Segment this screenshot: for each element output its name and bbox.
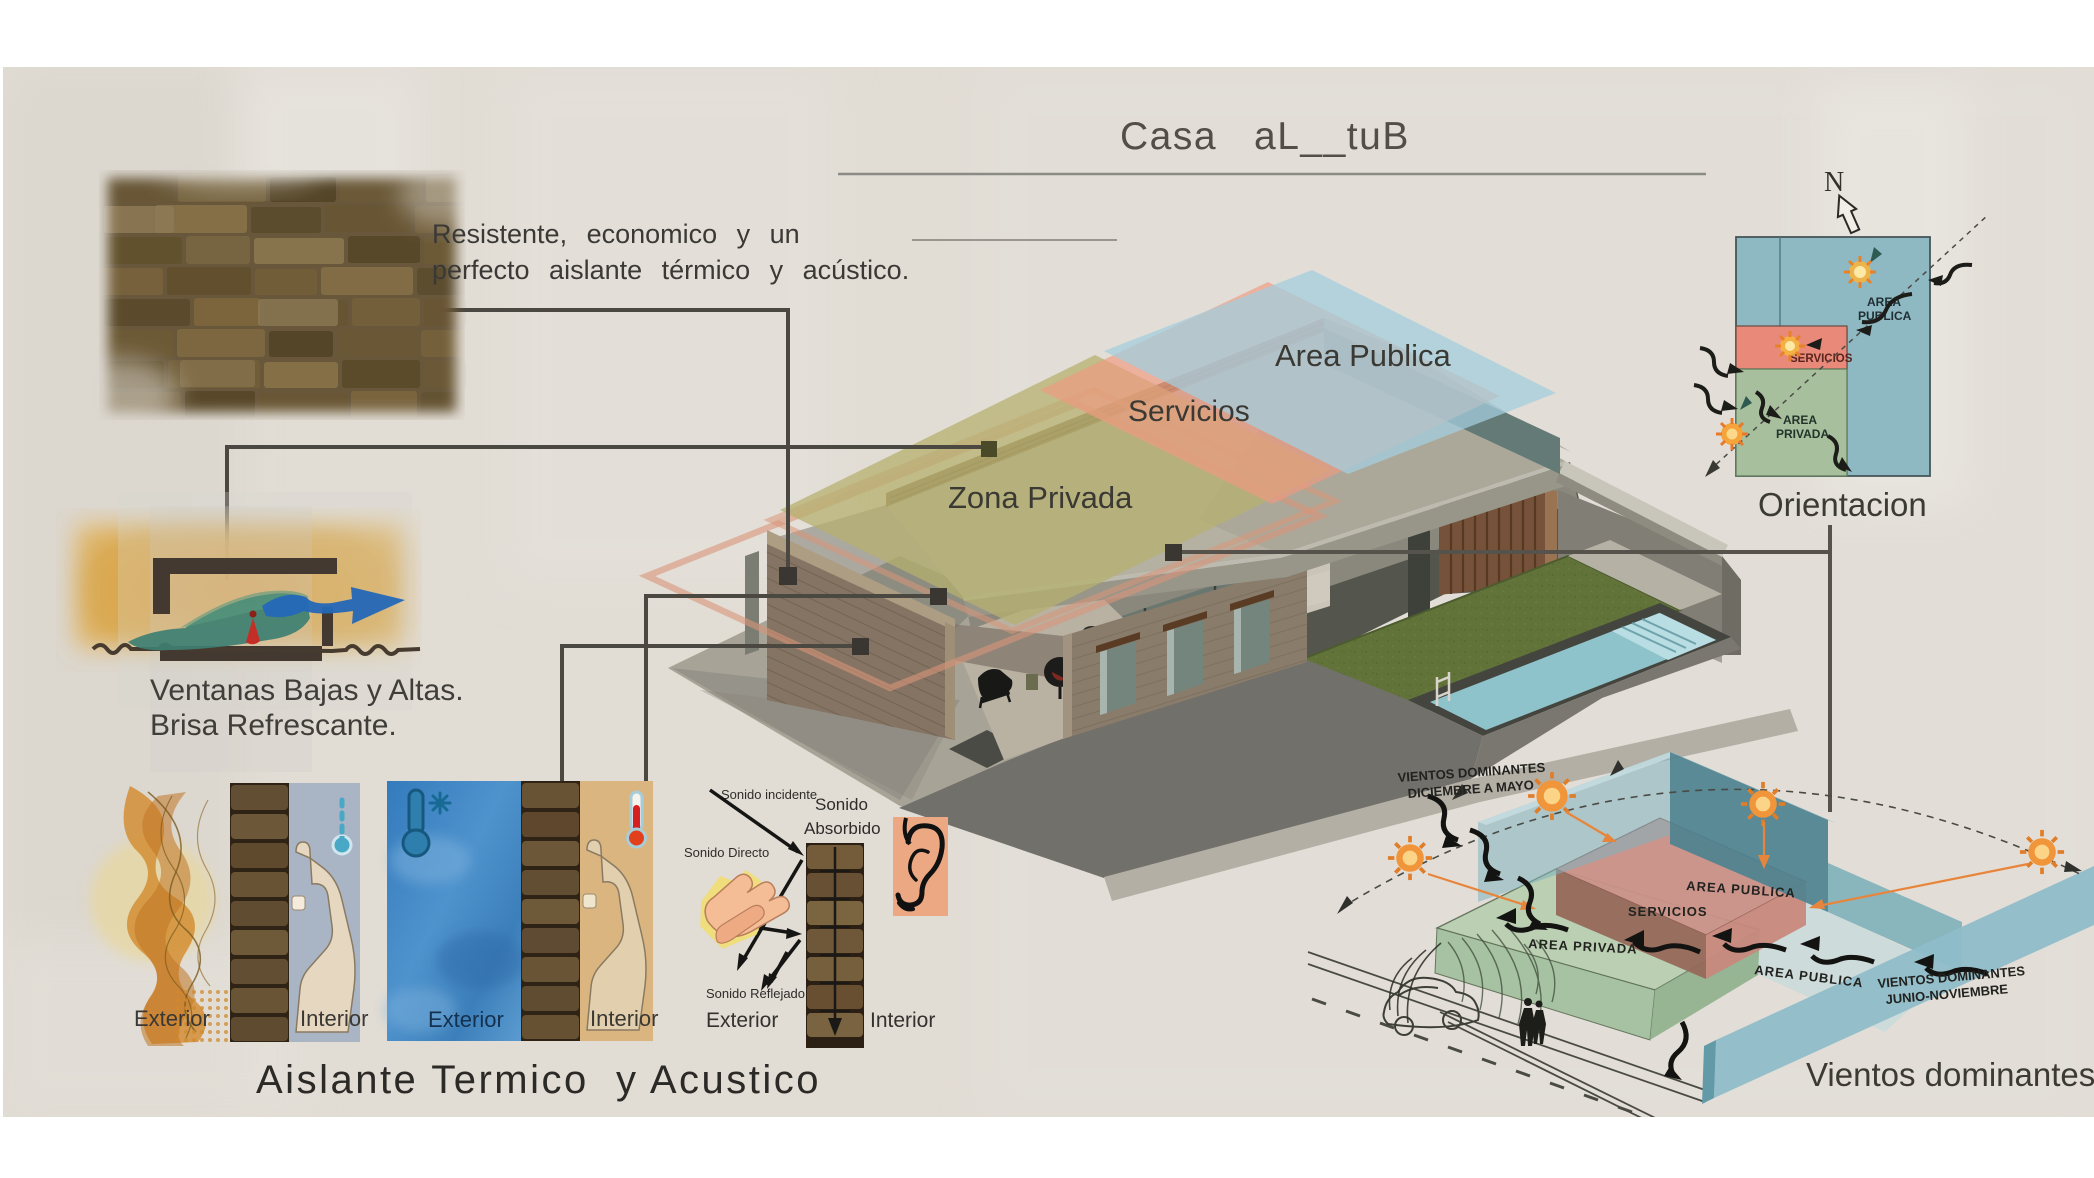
svg-text:Exterior: Exterior xyxy=(428,1007,504,1032)
svg-text:Sonido: Sonido xyxy=(815,795,868,814)
svg-text:N: N xyxy=(1824,167,1844,198)
svg-text:Ventanas Bajas y Altas.: Ventanas Bajas y Altas. xyxy=(150,674,464,707)
svg-text:Zona Privada: Zona Privada xyxy=(948,480,1133,515)
svg-text:Casa aL__tuB: Casa aL__tuB xyxy=(1120,115,1410,158)
svg-text:PRIVADA: PRIVADA xyxy=(1776,427,1829,441)
svg-text:Brisa Refrescante.: Brisa Refrescante. xyxy=(150,709,397,742)
svg-text:Interior: Interior xyxy=(300,1006,368,1031)
svg-text:Exterior: Exterior xyxy=(134,1006,210,1031)
svg-text:SERVICIOS: SERVICIOS xyxy=(1628,904,1708,919)
svg-text:Area Publica: Area Publica xyxy=(1275,338,1452,373)
svg-text:perfecto aislante térmico y ac: perfecto aislante térmico y acústico. xyxy=(432,255,909,285)
svg-text:Servicios: Servicios xyxy=(1128,395,1250,428)
svg-text:Sonido incidente: Sonido incidente xyxy=(721,787,817,802)
svg-text:Resistente, economico y un: Resistente, economico y un xyxy=(432,219,800,249)
svg-text:Vientos dominantes: Vientos dominantes xyxy=(1806,1056,2094,1093)
svg-text:Interior: Interior xyxy=(870,1009,935,1032)
svg-text:Absorbido: Absorbido xyxy=(804,819,881,838)
svg-text:Interior: Interior xyxy=(590,1006,658,1031)
svg-text:Orientacion: Orientacion xyxy=(1758,486,1927,523)
svg-text:Sonido Directo: Sonido Directo xyxy=(684,845,769,860)
svg-text:Aislante Termico y Acustico: Aislante Termico y Acustico xyxy=(256,1058,821,1102)
svg-text:Sonido Reflejado: Sonido Reflejado xyxy=(706,986,805,1001)
svg-text:Exterior: Exterior xyxy=(706,1009,778,1032)
svg-text:AREA: AREA xyxy=(1783,413,1817,427)
